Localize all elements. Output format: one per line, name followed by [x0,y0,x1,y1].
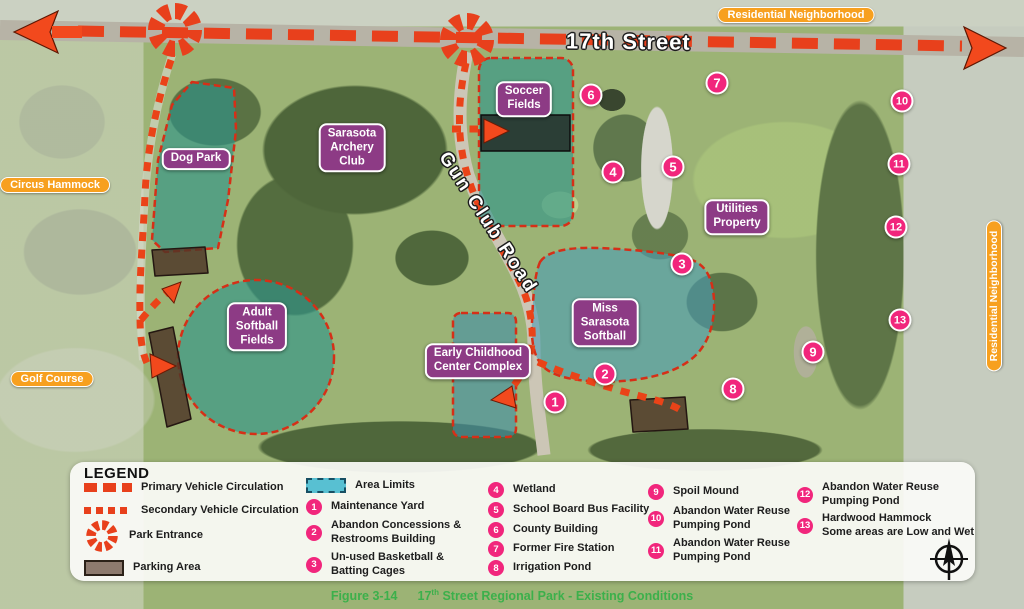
legend-row-parking: Parking Area [84,560,200,576]
park-entrance-swatch-icon [84,518,120,554]
legend-item-3: 3 Un-used Basketball & Batting Cages [306,551,481,579]
legend-label: Abandon Water Reuse Pumping Pond [673,537,790,565]
legend-label: Parking Area [133,561,200,575]
label-early-childhood: Early Childhood Center Complex [425,343,531,379]
legend-label: Former Fire Station [513,542,614,556]
parking-area-swatch [84,560,124,576]
legend-number-badge: 1 [306,499,322,515]
legend-label: Abandon Water Reuse Pumping Pond [822,481,939,509]
legend-label: Park Entrance [129,529,203,543]
map-marker-4: 4 [602,161,625,184]
figure-title: 17th Street Regional Park - Existing Con… [418,589,694,603]
legend-label: Un-used Basketball & Batting Cages [331,551,481,579]
label-utilities-property: Utilities Property [704,199,769,235]
legend-item-1: 1 Maintenance Yard [306,499,481,515]
legend-number-badge: 9 [648,484,664,500]
map-marker-10: 10 [891,90,914,113]
label-residential-right: Residential Neighborhood [986,221,1002,372]
label-miss-sarasota: Miss Sarasota Softball [572,298,639,347]
map-marker-1: 1 [544,391,567,414]
legend-row-area-limits: Area Limits [306,478,415,493]
legend-item-8: 8 Irrigation Pond [488,560,591,576]
area-limits-swatch [306,478,346,493]
legend-label: Irrigation Pond [513,561,591,575]
legend-number-badge: 11 [648,543,664,559]
legend-number-badge: 8 [488,560,504,576]
label-archery-club: Sarasota Archery Club [319,123,386,172]
map-marker-5: 5 [662,156,685,179]
figure-number: Figure 3-14 [331,589,398,603]
label-residential-top: Residential Neighborhood [718,7,875,23]
legend-label: Area Limits [355,479,415,493]
legend-item-12: 12 Abandon Water Reuse Pumping Pond [797,481,939,509]
map-marker-6: 6 [580,84,603,107]
legend-number-badge: 13 [797,518,813,534]
legend-item-4: 4 Wetland [488,482,556,498]
legend-number-badge: 4 [488,482,504,498]
legend-label: Abandon Water Reuse Pumping Pond [673,505,790,533]
map-marker-9: 9 [802,341,825,364]
secondary-circulation-swatch [84,507,132,514]
map-marker-7: 7 [706,72,729,95]
legend-label: County Building [513,523,598,537]
legend-number-badge: 3 [306,557,322,573]
legend-row-primary: Primary Vehicle Circulation [84,481,283,495]
legend-label: Wetland [513,483,556,497]
legend-number-badge: 2 [306,525,322,541]
map-marker-13: 13 [889,309,912,332]
legend-number-badge: 7 [488,541,504,557]
legend-label: School Board Bus Facility [513,503,649,517]
legend-label: Spoil Mound [673,485,739,499]
map-marker-11: 11 [888,153,911,176]
map-marker-12: 12 [885,216,908,239]
map-marker-3: 3 [671,253,694,276]
legend-item-9: 9 Spoil Mound [648,484,739,500]
park-map-figure: 17th Street Gun Club Road Residential Ne… [0,0,1024,609]
legend-item-6: 6 County Building [488,522,598,538]
road-label-17th-street: 17th Street [566,28,691,55]
legend-label: Secondary Vehicle Circulation [141,504,299,518]
label-adult-softball: Adult Softball Fields [227,302,287,351]
legend-number-badge: 10 [648,511,664,527]
legend-panel: LEGEND Primary Vehicle Circulation Secon… [70,462,975,581]
label-dog-park: Dog Park [162,148,231,170]
label-golf-course: Golf Course [11,371,94,387]
map-marker-2: 2 [594,363,617,386]
legend-item-7: 7 Former Fire Station [488,541,614,557]
label-circus-hammock: Circus Hammock [0,177,110,193]
legend-title: LEGEND [84,465,150,482]
legend-label: Maintenance Yard [331,500,481,514]
primary-circulation-swatch [84,483,132,492]
north-compass-icon [928,536,970,582]
label-soccer-fields: Soccer Fields [496,81,552,117]
legend-number-badge: 5 [488,502,504,518]
legend-label: Abandon Concessions & Restrooms Building [331,519,481,547]
legend-number-badge: 12 [797,487,813,503]
legend-item-5: 5 School Board Bus Facility [488,502,649,518]
legend-row-secondary: Secondary Vehicle Circulation [84,504,299,518]
legend-item-2: 2 Abandon Concessions & Restrooms Buildi… [306,519,481,547]
legend-row-entrance: Park Entrance [84,518,203,554]
map-marker-8: 8 [722,378,745,401]
legend-label: Primary Vehicle Circulation [141,481,283,495]
legend-number-badge: 6 [488,522,504,538]
figure-caption: Figure 3-1417th Street Regional Park - E… [0,588,1024,603]
legend-item-10: 10 Abandon Water Reuse Pumping Pond [648,505,790,533]
legend-item-11: 11 Abandon Water Reuse Pumping Pond [648,537,790,565]
